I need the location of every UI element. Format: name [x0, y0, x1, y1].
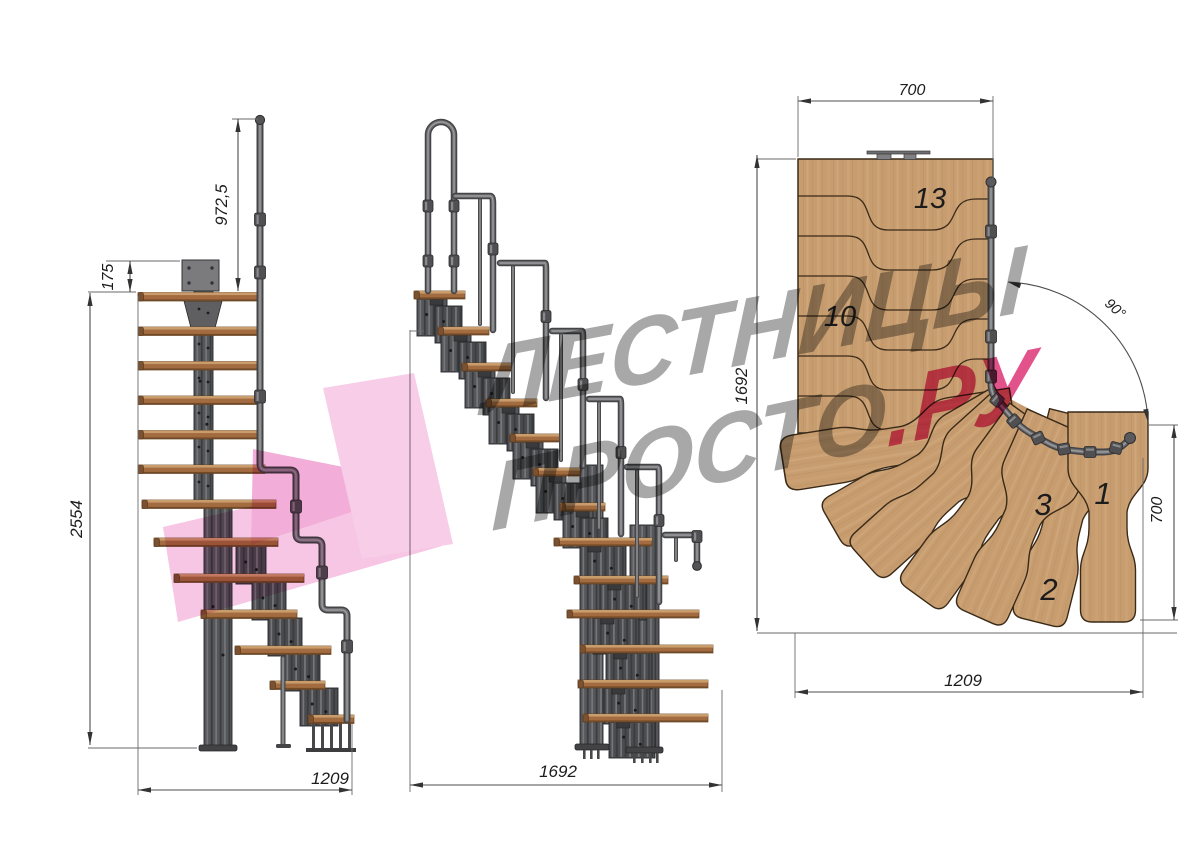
svg-text:2554: 2554	[67, 500, 86, 539]
svg-text:1692: 1692	[539, 762, 577, 781]
svg-text:3: 3	[1034, 487, 1051, 522]
svg-text:700: 700	[1149, 497, 1166, 524]
svg-text:700: 700	[899, 82, 926, 99]
svg-text:1: 1	[1094, 476, 1111, 511]
svg-text:13: 13	[914, 183, 946, 215]
svg-text:972,5: 972,5	[213, 184, 231, 226]
svg-text:175: 175	[100, 264, 117, 291]
svg-text:1209: 1209	[311, 769, 349, 788]
svg-text:2: 2	[1039, 572, 1057, 607]
svg-text:1209: 1209	[944, 671, 982, 690]
